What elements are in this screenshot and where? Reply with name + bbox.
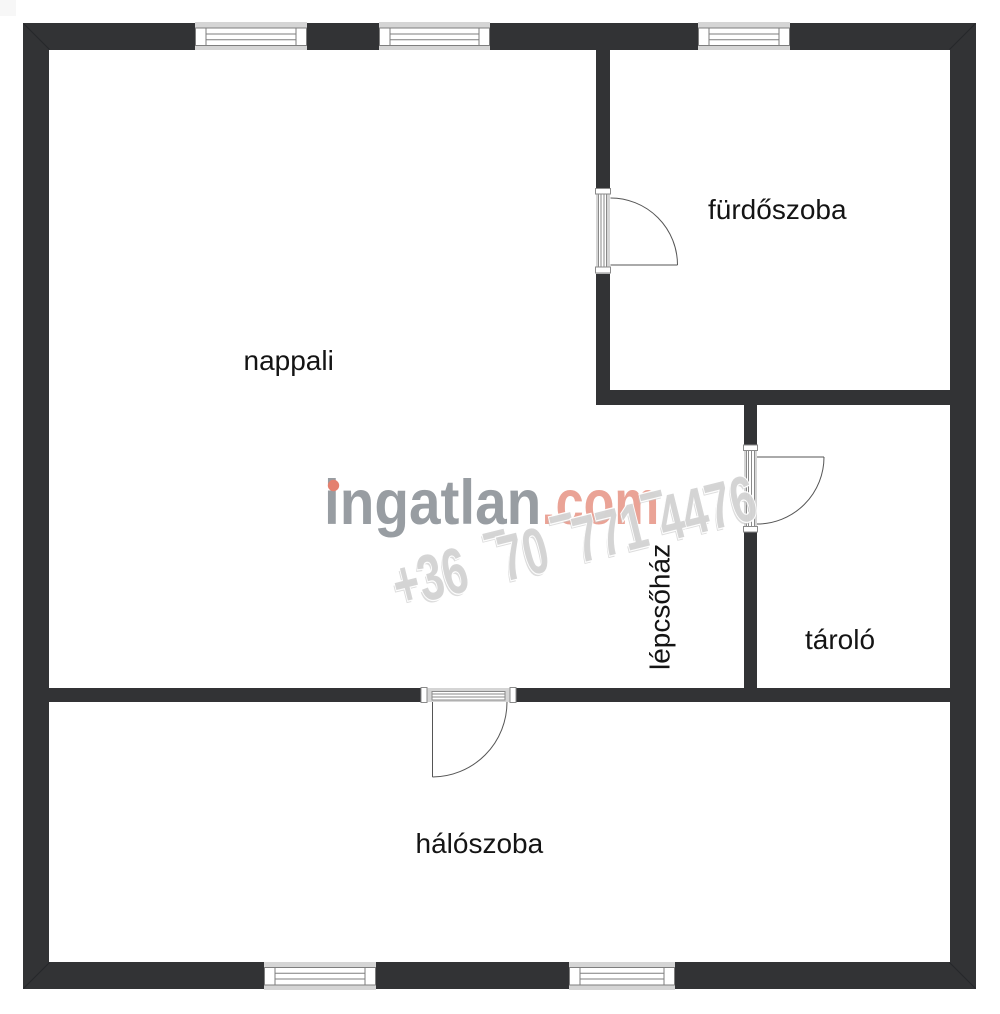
svg-text:fürdőszoba: fürdőszoba: [708, 194, 847, 225]
svg-text:tároló: tároló: [805, 624, 875, 655]
svg-text:lépcsőház: lépcsőház: [645, 544, 676, 670]
svg-text:nappali: nappali: [244, 345, 334, 376]
svg-text:hálószoba: hálószoba: [416, 828, 544, 859]
